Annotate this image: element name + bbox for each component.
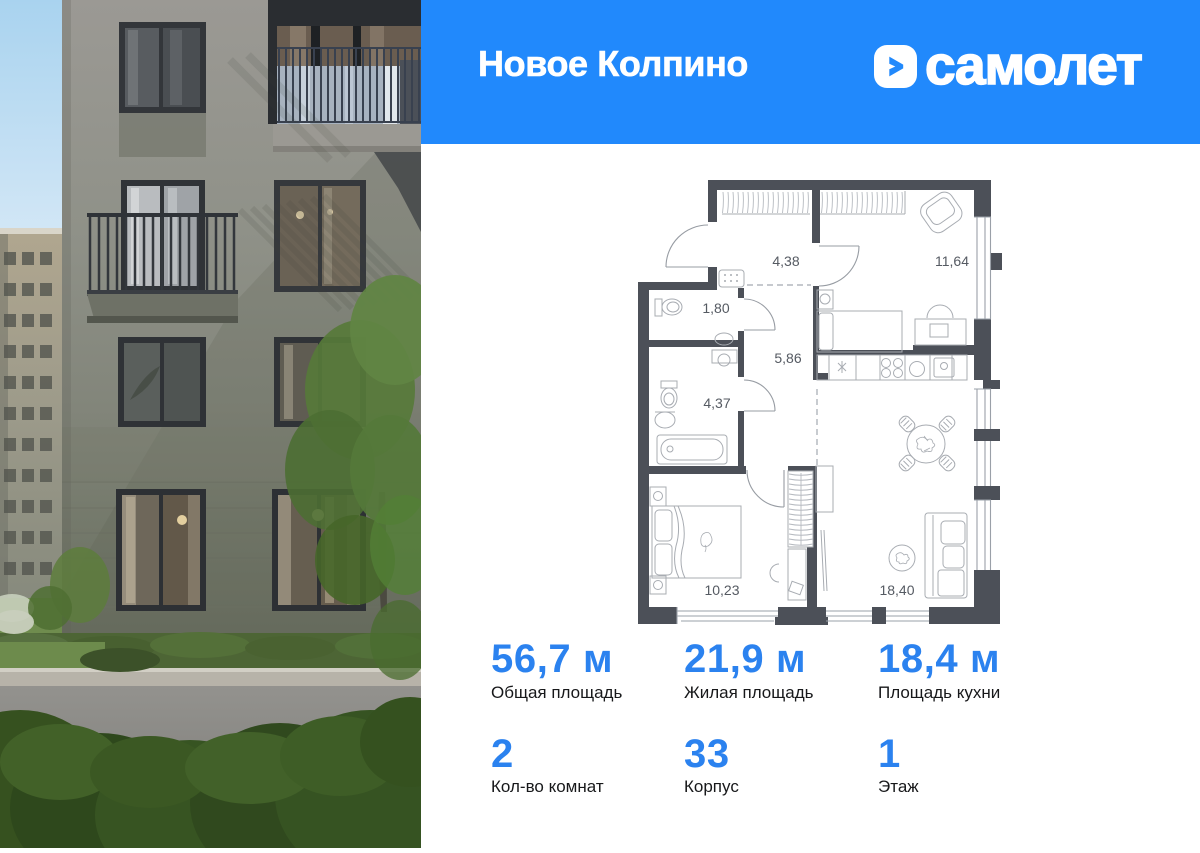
svg-text:4,37: 4,37 [703,395,730,411]
svg-text:18,40: 18,40 [879,582,914,598]
svg-text:11,64: 11,64 [935,253,969,269]
svg-text:1,80: 1,80 [702,300,729,316]
svg-text:5,86: 5,86 [774,350,801,366]
svg-text:10,23: 10,23 [704,582,739,598]
svg-text:4,38: 4,38 [772,253,799,269]
